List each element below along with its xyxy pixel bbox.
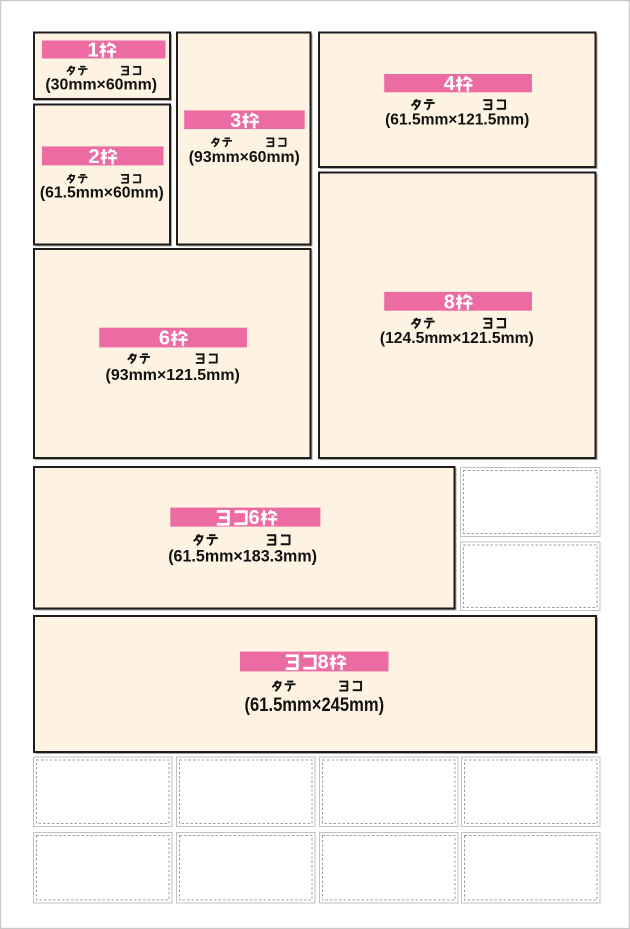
svg-text:2: 2 <box>88 146 99 168</box>
svg-text:1: 1 <box>87 40 98 62</box>
svg-text:(61.5mm×60mm): (61.5mm×60mm) <box>40 185 164 202</box>
svg-text:(93mm×121.5mm): (93mm×121.5mm) <box>106 367 240 384</box>
svg-text:8: 8 <box>317 652 328 674</box>
svg-text:(61.5mm×245mm): (61.5mm×245mm) <box>245 695 385 716</box>
svg-text:8: 8 <box>444 291 455 313</box>
svg-text:4: 4 <box>444 73 456 95</box>
svg-text:3: 3 <box>230 110 241 132</box>
svg-text:6: 6 <box>159 328 170 350</box>
svg-text:(93mm×60mm): (93mm×60mm) <box>189 149 300 166</box>
svg-text:(124.5mm×121.5mm): (124.5mm×121.5mm) <box>380 330 534 347</box>
svg-text:(30mm×60mm): (30mm×60mm) <box>45 77 157 94</box>
svg-text:6: 6 <box>249 507 260 529</box>
svg-text:(61.5mm×121.5mm): (61.5mm×121.5mm) <box>385 111 529 128</box>
svg-text:(61.5mm×183.3mm): (61.5mm×183.3mm) <box>168 548 317 566</box>
